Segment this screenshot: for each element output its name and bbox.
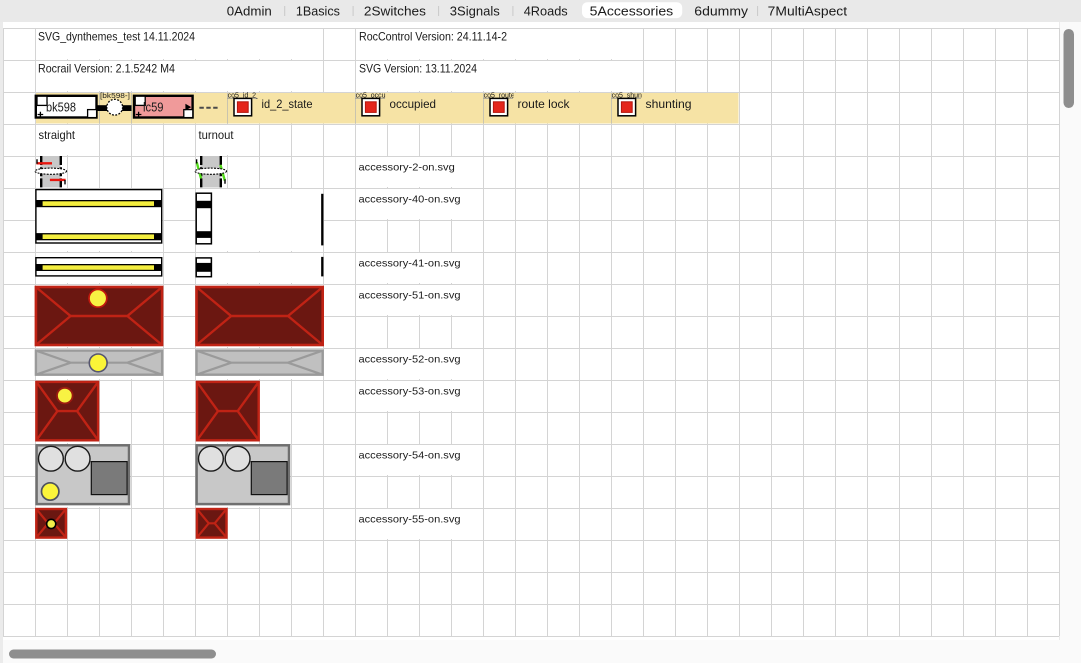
svg-text:bk598: bk598 bbox=[46, 99, 76, 114]
svg-text:accessory-2-on.svg: accessory-2-on.svg bbox=[359, 161, 455, 173]
svg-text:id_2_state: id_2_state bbox=[262, 97, 313, 111]
svg-text:straight: straight bbox=[39, 128, 76, 142]
svg-text:SVG Version: 13.11.2024: SVG Version: 13.11.2024 bbox=[359, 62, 477, 76]
svg-text:4Roads: 4Roads bbox=[524, 4, 568, 19]
svg-text:1Basics: 1Basics bbox=[296, 4, 340, 19]
svg-text:accessory-53-on.svg: accessory-53-on.svg bbox=[359, 385, 461, 397]
svg-text:lc59: lc59 bbox=[143, 99, 164, 114]
svg-text:5Accessories: 5Accessories bbox=[590, 4, 674, 19]
svg-text:6dummy: 6dummy bbox=[694, 4, 748, 19]
svg-text:route lock: route lock bbox=[518, 97, 571, 111]
svg-text:accessory-40-on.svg: accessory-40-on.svg bbox=[359, 193, 461, 205]
svg-text:2Switches: 2Switches bbox=[364, 4, 427, 19]
svg-text:shunting: shunting bbox=[646, 97, 692, 111]
svg-text:[bk598-]: [bk598-] bbox=[100, 91, 130, 100]
svg-text:accessory-54-on.svg: accessory-54-on.svg bbox=[359, 449, 461, 461]
svg-text:accessory-52-on.svg: accessory-52-on.svg bbox=[359, 353, 461, 365]
svg-text:RocControl Version: 24.11.14-2: RocControl Version: 24.11.14-2 bbox=[359, 30, 507, 44]
svg-text:accessory-41-on.svg: accessory-41-on.svg bbox=[359, 257, 461, 269]
svg-text:Rocrail Version: 2.1.5242 M4: Rocrail Version: 2.1.5242 M4 bbox=[38, 62, 175, 76]
svg-text:turnout: turnout bbox=[199, 128, 235, 142]
svg-text:occupied: occupied bbox=[390, 97, 437, 111]
svg-text:accessory-55-on.svg: accessory-55-on.svg bbox=[359, 513, 461, 525]
svg-text:SVG_dynthemes_test 14.11.2024: SVG_dynthemes_test 14.11.2024 bbox=[38, 30, 195, 44]
svg-text:3Signals: 3Signals bbox=[450, 4, 500, 19]
svg-text:accessory-51-on.svg: accessory-51-on.svg bbox=[359, 289, 461, 301]
svg-text:0Admin: 0Admin bbox=[227, 4, 272, 19]
svg-text:7MultiAspect: 7MultiAspect bbox=[768, 4, 848, 19]
